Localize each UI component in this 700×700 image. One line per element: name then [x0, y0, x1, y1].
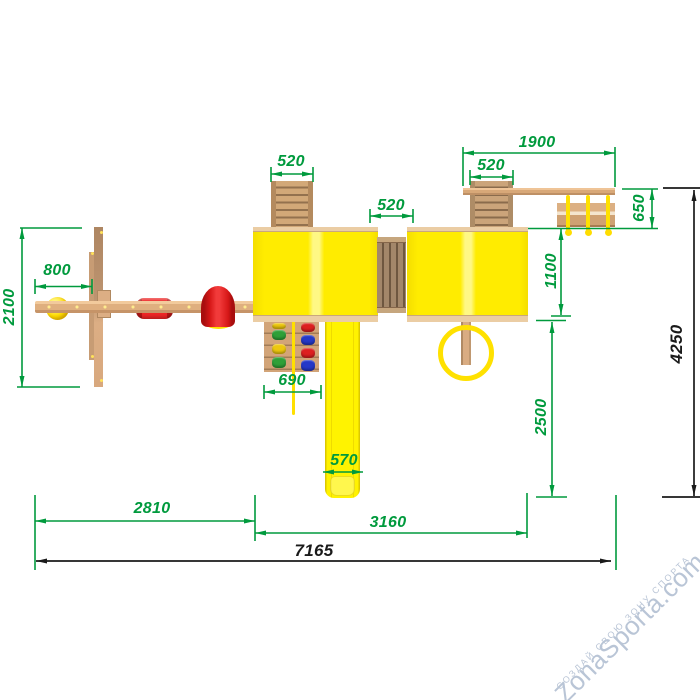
dim-label-tower-section-width: 3160 — [358, 514, 418, 532]
dim-label-cantilever-span: 1900 — [507, 134, 567, 152]
dimension-lines-layer — [0, 0, 700, 700]
dim-label-ball-offset: 800 — [27, 262, 87, 280]
dim-label-roof-to-bench: 1100 — [543, 241, 561, 301]
dim-label-roof-to-slide-end: 2500 — [533, 387, 551, 447]
dim-label-ladder-width: 520 — [261, 153, 321, 171]
dim-label-climber-width: 520 — [461, 157, 521, 175]
dim-label-bridge-width: 520 — [361, 197, 421, 215]
blueprint-canvas: 520 520 520 1900 650 1100 2500 2100 800 … — [0, 0, 700, 700]
dim-label-climb-wall-width: 690 — [262, 372, 322, 390]
dim-label-bench-depth: 650 — [631, 178, 649, 238]
dim-label-slide-width: 570 — [314, 452, 374, 470]
dim-label-total-width: 7165 — [284, 542, 344, 560]
dim-label-total-depth: 4250 — [668, 314, 686, 374]
dim-label-aframe-depth: 2100 — [1, 277, 19, 337]
dim-label-swing-section-width: 2810 — [122, 500, 182, 518]
